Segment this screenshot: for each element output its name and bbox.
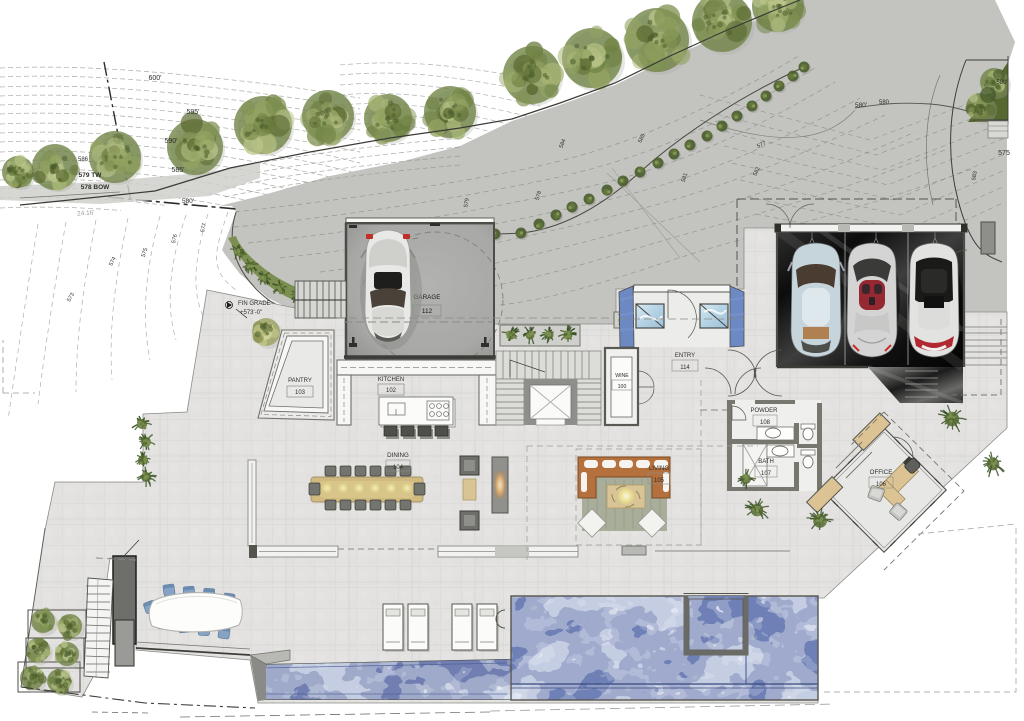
svg-text:108: 108: [760, 420, 771, 426]
svg-text:590': 590': [164, 138, 177, 145]
svg-text:107: 107: [761, 471, 772, 477]
svg-text:580: 580: [879, 100, 890, 106]
svg-text:580': 580': [855, 102, 867, 109]
svg-text:100: 100: [618, 384, 627, 390]
svg-text:600': 600': [148, 75, 161, 82]
svg-text:WINE: WINE: [615, 373, 629, 379]
svg-text:102: 102: [386, 388, 397, 394]
svg-text:LIVING: LIVING: [649, 465, 669, 472]
svg-text:24.16': 24.16': [77, 209, 95, 217]
svg-text:586: 586: [78, 157, 89, 163]
svg-text:575: 575: [998, 150, 1010, 157]
svg-text:112: 112: [422, 308, 433, 315]
svg-text:585': 585': [171, 167, 184, 174]
svg-text:580': 580': [996, 80, 1007, 86]
svg-text:595': 595': [186, 109, 199, 116]
svg-text:578 BOW: 578 BOW: [81, 184, 110, 191]
svg-text:ENTRY: ENTRY: [675, 353, 695, 359]
svg-text:KITCHEN: KITCHEN: [378, 377, 404, 383]
svg-text:DINING: DINING: [387, 452, 409, 459]
svg-text:POWDER: POWDER: [751, 408, 779, 414]
svg-text:PANTRY: PANTRY: [288, 378, 312, 384]
svg-text:105: 105: [654, 478, 665, 484]
svg-text:106: 106: [876, 482, 887, 488]
svg-text:103: 103: [295, 390, 306, 396]
svg-text:580': 580': [182, 198, 194, 205]
svg-text:FIN GRADE: FIN GRADE: [238, 301, 271, 307]
svg-text:579 TW: 579 TW: [79, 172, 103, 179]
svg-text:104: 104: [393, 465, 404, 471]
svg-text:BATH: BATH: [758, 459, 774, 465]
svg-text:114: 114: [680, 365, 690, 371]
svg-text:OFFICE: OFFICE: [870, 469, 893, 476]
